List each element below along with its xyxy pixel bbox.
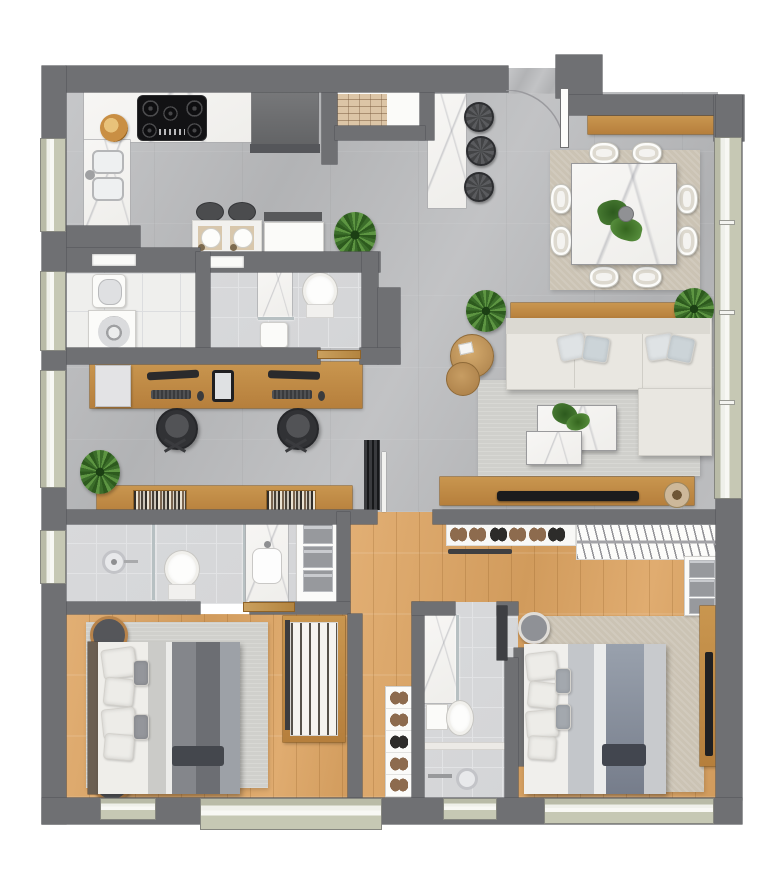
- window-bottom-large: [200, 798, 382, 830]
- coffee-table-small: [527, 432, 581, 464]
- service-bench: [264, 212, 322, 221]
- wall-bath2-right: [505, 658, 518, 798]
- bed1-pillow: [103, 733, 135, 762]
- breakfast-chair: [196, 202, 224, 222]
- wall-service-stub: [66, 226, 140, 248]
- master-door-leaf: [497, 606, 507, 660]
- cooktop-burner: [142, 123, 157, 138]
- living-plant-left: [466, 290, 506, 332]
- entry-door-swing-arc: [506, 90, 564, 148]
- cooktop-burner: [142, 100, 159, 117]
- tv: [497, 491, 639, 501]
- powder-shower-glass: [258, 317, 294, 320]
- printer: [95, 365, 131, 407]
- shower-arm: [124, 560, 138, 563]
- bath2-threshold: [424, 742, 506, 750]
- bath1-glass: [152, 514, 155, 600]
- books: [266, 490, 316, 512]
- shoe-pair: [390, 757, 408, 771]
- bath2-glass: [456, 615, 459, 703]
- dining-chair: [550, 184, 572, 214]
- outer-wall-top: [66, 66, 508, 92]
- dining-chair: [550, 226, 572, 256]
- dining-chair: [589, 266, 619, 288]
- bar-stool: [464, 102, 494, 132]
- mouse: [197, 391, 204, 401]
- bed1-accent-pillow: [133, 714, 149, 740]
- shoe-pair: [490, 527, 507, 542]
- bath1-toilet-bowl: [164, 550, 200, 588]
- master-pouf: [518, 612, 550, 644]
- window-left-bathroom1: [40, 530, 66, 584]
- bed1-blanket-dark: [196, 642, 220, 794]
- dining-chair: [589, 142, 619, 164]
- wall-niche: [92, 254, 136, 266]
- wall-office-top: [66, 348, 320, 364]
- bed1-headboard: [88, 642, 98, 794]
- clothes-rod: [448, 549, 512, 554]
- centerpiece-vase: [618, 206, 634, 222]
- folded-clothes: [689, 560, 715, 578]
- laundry-sink-bowl: [98, 279, 122, 305]
- bed1-pillow: [103, 677, 136, 708]
- towel-bar: [428, 774, 452, 778]
- sofa-pillow: [666, 334, 697, 365]
- wall-niche: [208, 256, 244, 268]
- towel-stack: [303, 546, 333, 568]
- dining-chair: [676, 184, 698, 214]
- powder-toilet-base: [306, 304, 334, 318]
- shoe-pair: [450, 527, 467, 542]
- bed1-sheet-band: [148, 642, 166, 794]
- wall-closet-top: [433, 510, 718, 524]
- bar-stool: [464, 172, 494, 202]
- window-right-glazing: [714, 137, 742, 499]
- shoe-pair: [390, 713, 408, 727]
- wall-bath2-top-left: [412, 602, 455, 615]
- bath1-toilet-tank: [168, 584, 196, 600]
- bed1-blanket: [172, 642, 196, 794]
- bedroom1-door-leaf: [244, 603, 294, 611]
- bath1-faucet: [264, 541, 271, 548]
- window-left-office: [40, 370, 66, 488]
- cooktop-burner: [187, 123, 202, 138]
- master-sheet-band: [568, 644, 594, 794]
- tablet: [212, 370, 234, 402]
- window-mullion-tick: [719, 400, 735, 405]
- towel-stack: [303, 522, 333, 544]
- powder-door-leaf: [318, 351, 360, 358]
- decor-bowl: [664, 482, 690, 508]
- office-plant: [80, 450, 120, 494]
- shoe-pair: [469, 527, 486, 542]
- powder-sink: [260, 322, 288, 348]
- wall-powder-left: [196, 252, 210, 356]
- wall-bath1-bottom-left: [66, 602, 200, 614]
- cooktop-knobs: [159, 129, 185, 135]
- books: [133, 490, 187, 512]
- master-blanket-edge: [644, 644, 666, 794]
- cooktop-burner: [186, 100, 203, 117]
- bath1-sink: [252, 548, 282, 584]
- dining-chair: [632, 142, 662, 164]
- master-accent-pillow: [555, 704, 571, 730]
- bath2-toilet-tank: [426, 704, 448, 730]
- kitchen-counter-dark: [250, 144, 320, 153]
- refrigerator: [252, 92, 318, 144]
- wall-bath1-right: [337, 512, 350, 602]
- powder-shower-stall: [258, 268, 292, 318]
- wall-tv: [705, 652, 713, 756]
- sofa-seam: [642, 334, 643, 388]
- sofa-pillow: [581, 334, 611, 364]
- mouse: [318, 391, 325, 401]
- bar-stool: [466, 136, 496, 166]
- shoe-pair: [390, 691, 408, 705]
- shower-head-dot: [111, 559, 117, 565]
- towel-stack: [303, 570, 333, 592]
- washer-drum: [98, 316, 130, 348]
- floor-drain: [456, 768, 478, 790]
- wall-office-bottom: [66, 510, 377, 524]
- window-bottom-master: [544, 798, 714, 824]
- wardrobe-interior: [290, 622, 338, 736]
- bed1-accent-pillow: [133, 660, 149, 686]
- window-mullion-tick: [719, 310, 735, 315]
- cup: [230, 244, 237, 251]
- kitchen-faucet: [85, 170, 95, 180]
- breakfast-chair: [228, 202, 256, 222]
- floor-plan: [0, 0, 768, 882]
- master-duvet: [606, 644, 644, 794]
- kitchen-sink-basin: [92, 150, 124, 174]
- cooktop-burner: [163, 106, 178, 121]
- master-pillow: [527, 735, 557, 761]
- wall-bath2-left: [412, 602, 424, 798]
- wall-pantry-bottom: [335, 126, 425, 140]
- master-fold-line: [594, 644, 606, 794]
- wall-office-top-right: [360, 348, 400, 364]
- bath2-shower-stall: [424, 615, 456, 703]
- shoe-pair: [509, 527, 526, 542]
- divider-door-slats: [364, 440, 380, 510]
- sofa-back: [506, 318, 710, 334]
- pantry-shelf: [337, 94, 387, 128]
- bed1-runner: [172, 746, 224, 766]
- hanging-rack: [576, 524, 718, 560]
- outer-wall-top-right: [568, 95, 718, 115]
- dining-chair: [632, 266, 662, 288]
- wardrobe-dark-bar: [285, 620, 290, 730]
- shoe-pair: [390, 778, 408, 792]
- shoe-pair: [548, 527, 565, 542]
- sofa-chaise: [638, 388, 712, 456]
- bed1-blanket-edge: [220, 642, 240, 794]
- keyboard: [272, 390, 312, 399]
- sideboard: [588, 116, 716, 134]
- window-bottom-bathroom2: [443, 798, 497, 820]
- window-mullion-tick: [719, 220, 735, 225]
- wall-bedroom1-right: [348, 614, 362, 798]
- bath2-toilet-bowl: [446, 700, 474, 736]
- side-table-small: [446, 362, 480, 396]
- entry-door-leaf: [560, 88, 569, 148]
- window-bottom-bedroom1: [100, 798, 156, 820]
- sofa-console: [511, 303, 679, 319]
- shoe-pair: [390, 735, 408, 749]
- master-dark-fold: [602, 744, 646, 766]
- folded-clothes: [689, 579, 715, 597]
- master-accent-pillow: [555, 668, 571, 694]
- kitchen-sink-basin: [92, 177, 124, 201]
- window-left-laundry: [40, 271, 66, 351]
- window-left-kitchen: [40, 138, 66, 232]
- keyboard: [151, 390, 191, 399]
- shoe-pair: [529, 527, 546, 542]
- fruit-bowl: [100, 114, 128, 142]
- dining-chair: [676, 226, 698, 256]
- divider-door-pole: [382, 452, 386, 512]
